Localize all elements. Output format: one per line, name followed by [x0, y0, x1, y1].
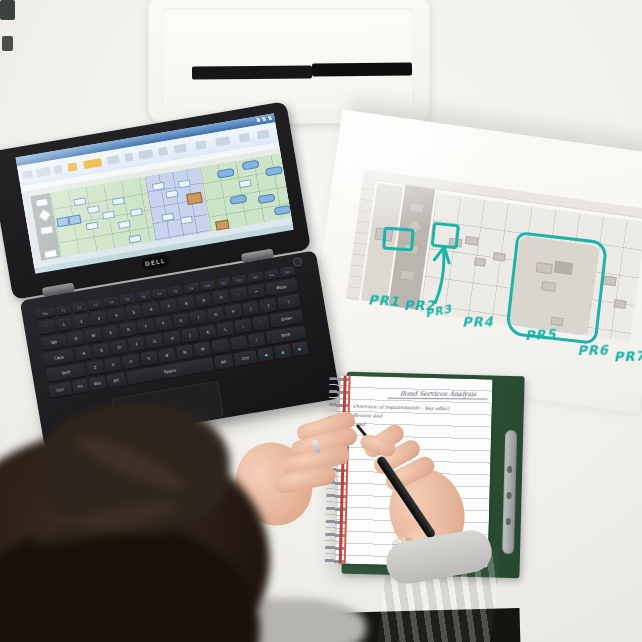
key-i: I: [189, 309, 207, 326]
key-a: A: [75, 345, 93, 362]
key-b: B: [158, 347, 176, 364]
screen-glare: [15, 113, 293, 273]
marker-label-pr6: PR6: [577, 342, 609, 358]
flow-node: [613, 299, 626, 309]
person-head-hair: [0, 390, 340, 642]
key-h: H: [163, 330, 181, 347]
key-8: 8: [177, 295, 195, 312]
key-alt: Alt: [213, 354, 234, 371]
cable-slot: [312, 62, 412, 76]
clip-detail: [506, 492, 511, 499]
key-alt: Alt: [106, 372, 127, 389]
key-f9: F9: [184, 283, 200, 295]
key-y: Y: [154, 315, 172, 332]
key-f4: F4: [104, 296, 120, 308]
key-k: K: [199, 324, 217, 341]
key-f7: F7: [152, 288, 168, 300]
key-del: Del: [280, 266, 296, 278]
key-u: U: [172, 312, 190, 329]
handwritten-line: - Overview of requirements – key effect: [349, 403, 450, 412]
key-\: \: [277, 293, 301, 311]
clip-detail: [507, 466, 512, 473]
flow-node: [399, 269, 415, 281]
key-prt: Prt: [248, 272, 264, 284]
key-f5: F5: [120, 294, 136, 306]
marker-highlight-box: [382, 227, 415, 252]
key-▶: ▶: [291, 341, 309, 357]
key-9: 9: [195, 292, 213, 309]
key-g: G: [146, 333, 164, 350]
laptop-screen: [15, 113, 293, 273]
key-d: D: [110, 339, 128, 356]
key-t: T: [137, 318, 155, 335]
key-x: X: [104, 357, 122, 374]
key-2: 2: [72, 313, 90, 330]
key-n: N: [176, 344, 194, 361]
key-ins: Ins: [264, 269, 280, 281]
key-j: J: [181, 327, 199, 344]
key-7: 7: [160, 298, 178, 315]
flow-node: [603, 276, 617, 287]
key-4: 4: [107, 307, 125, 324]
key-3: 3: [90, 310, 108, 327]
flow-node: [474, 257, 486, 266]
key-[: [: [242, 300, 260, 317]
marker-label-pr4: PR4: [462, 314, 494, 330]
flow-node: [465, 236, 479, 246]
power-button-icon: [292, 257, 302, 267]
marker-label-pr7: PR7: [614, 348, 642, 364]
key-f8: F8: [168, 285, 184, 297]
key-]: ]: [259, 297, 277, 314]
marker-label-pr5: PR5: [525, 326, 557, 343]
desk-photo-scene: PR1 PR2 PR3 PR4 PR5 PR6 PR7: [0, 0, 642, 642]
key-r: R: [119, 321, 137, 338]
key-c: C: [122, 353, 140, 370]
folder-clip: [502, 430, 517, 554]
wall-marker-icon: [0, 0, 15, 20]
key-f1: F1: [56, 304, 72, 316]
flow-node: [406, 218, 423, 235]
key-l: L: [216, 321, 234, 338]
key-=: =: [247, 283, 265, 300]
key-e: E: [102, 324, 120, 341]
key-f2: F2: [72, 302, 88, 314]
key-v: V: [140, 350, 158, 367]
cable-slot: [192, 65, 312, 79]
key-f: F: [128, 336, 146, 353]
flow-node: [493, 252, 506, 262]
key-o: O: [207, 306, 225, 323]
key-s: S: [92, 342, 110, 359]
key-m: M: [194, 341, 212, 358]
key-/: /: [248, 332, 266, 349]
key-f10: F10: [200, 280, 216, 292]
key--: -: [230, 286, 248, 303]
key-6: 6: [142, 301, 160, 318]
key-`: `: [37, 319, 55, 336]
key-z: Z: [86, 360, 104, 377]
key-p: P: [224, 303, 242, 320]
key-.: .: [230, 335, 248, 352]
key-f11: F11: [216, 277, 232, 289]
key-;: ;: [234, 318, 252, 335]
handwritten-title: Bond Services Analysis: [388, 390, 489, 400]
dell-logo: DELL: [140, 254, 170, 271]
key-5: 5: [125, 304, 143, 321]
marker-region-outline: [505, 231, 608, 345]
key-f3: F3: [88, 299, 104, 311]
key-esc: Esc: [36, 307, 56, 320]
key-,: ,: [212, 338, 230, 355]
key-f6: F6: [136, 291, 152, 303]
key-▲: ▲: [274, 344, 292, 360]
key-1: 1: [55, 316, 73, 333]
key-w: W: [84, 327, 102, 344]
clip-detail: [506, 518, 511, 525]
key-q: Q: [67, 330, 85, 347]
key-f12: F12: [232, 274, 248, 286]
flow-node: [409, 202, 425, 214]
key-◀: ◀: [257, 347, 275, 363]
key-0: 0: [212, 289, 230, 306]
wall-marker-icon: [2, 36, 13, 51]
key-tab: Tab: [40, 333, 67, 351]
key-ctrl: Ctrl: [234, 350, 258, 368]
grommet-lid: [162, 8, 414, 110]
key-': ': [252, 315, 270, 332]
